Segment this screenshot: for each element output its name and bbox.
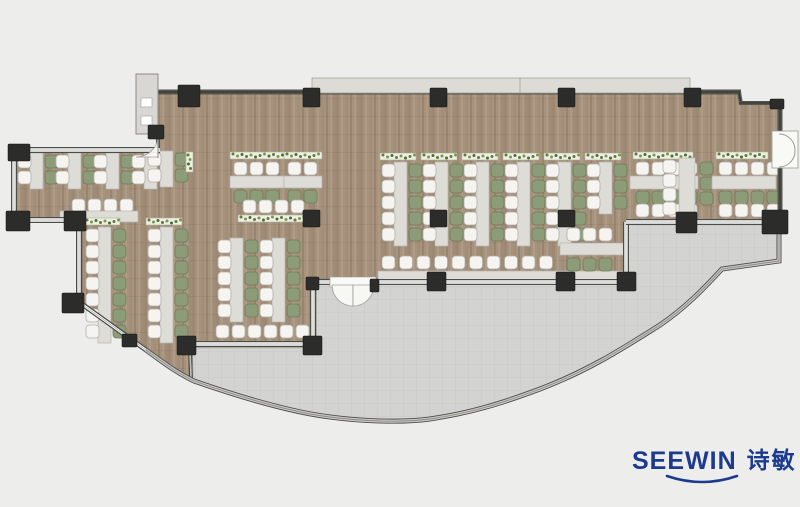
chair-white: [218, 288, 231, 301]
chair-white: [148, 261, 161, 274]
chair-green: [491, 196, 504, 209]
plant-icon: [505, 154, 508, 157]
chair-white: [567, 228, 580, 241]
chair-green: [751, 191, 764, 204]
plant-icon: [675, 153, 678, 156]
chair-white: [587, 164, 600, 177]
desk-cluster: [567, 258, 612, 271]
chair-white: [148, 169, 161, 182]
plant-icon: [648, 155, 651, 158]
chair-green: [450, 164, 463, 177]
desk: [476, 162, 489, 246]
chair-green: [532, 196, 545, 209]
plant-icon: [441, 155, 444, 158]
plant-icon: [95, 219, 98, 222]
chair-white: [148, 309, 161, 322]
chair-white: [216, 325, 229, 338]
plant-icon: [491, 155, 494, 158]
desk: [599, 162, 612, 214]
chair-white: [86, 277, 99, 290]
plant-icon: [763, 155, 766, 158]
chair-white: [132, 171, 145, 184]
chair-white: [423, 196, 436, 209]
desk: [230, 176, 284, 188]
chair-white: [505, 180, 518, 193]
chair-green: [113, 293, 126, 306]
plant-icon: [391, 154, 394, 157]
structural-column: [558, 210, 575, 227]
plant-icon: [108, 222, 111, 225]
plant-icon: [277, 155, 280, 158]
plant-icon: [268, 155, 271, 158]
plant-icon: [722, 155, 725, 158]
structural-column: [427, 272, 446, 291]
plant-icon: [618, 154, 621, 157]
plant-icon: [666, 153, 669, 156]
desk-cluster: [260, 238, 300, 322]
chair-white: [487, 256, 500, 269]
desk: [272, 238, 285, 322]
chair-white: [505, 212, 518, 225]
chair-white: [636, 204, 649, 217]
plant-icon: [285, 218, 288, 221]
chair-green: [491, 180, 504, 193]
chair-green: [245, 272, 258, 285]
desk: [160, 151, 173, 187]
plant-icon: [684, 154, 687, 157]
plant-icon: [298, 217, 301, 220]
chair-white: [435, 256, 448, 269]
chair-white: [663, 160, 676, 173]
chair-green: [113, 245, 126, 258]
chair-white: [522, 256, 535, 269]
plant-icon: [175, 220, 178, 223]
desk: [435, 162, 448, 246]
chair-white: [464, 180, 477, 193]
plant-icon: [550, 156, 553, 159]
structural-column: [556, 272, 575, 291]
structural-column: [684, 88, 701, 107]
chair-white: [546, 196, 559, 209]
desk-cluster: [380, 153, 422, 246]
chair-white: [266, 162, 279, 175]
chair-green: [113, 229, 126, 242]
plant-icon: [477, 156, 480, 159]
chair-white: [104, 199, 117, 212]
chair-green: [175, 245, 188, 258]
chair-white: [94, 155, 107, 168]
plant-icon: [263, 153, 266, 156]
desk: [517, 162, 530, 246]
plant-icon: [591, 156, 594, 159]
chair-green: [573, 180, 586, 193]
structural-column: [177, 336, 196, 355]
plant-icon: [276, 218, 279, 221]
plant-icon: [395, 156, 398, 159]
chair-white: [382, 196, 395, 209]
floorplan-image: SEEWIN 诗敏: [0, 0, 800, 507]
plant-icon: [245, 155, 248, 158]
chair-white: [260, 272, 273, 285]
chair-green: [700, 162, 713, 175]
plant-icon: [104, 220, 107, 223]
desk-cluster: [560, 243, 624, 255]
plant-icon: [161, 221, 164, 224]
chair-green: [113, 277, 126, 290]
structural-column: [148, 125, 164, 139]
plant-icon: [464, 154, 467, 157]
plant-icon: [409, 155, 412, 158]
chair-white: [243, 200, 256, 213]
plant-icon: [454, 154, 457, 157]
chair-green: [700, 177, 713, 190]
chair-white: [234, 162, 247, 175]
plant-icon: [523, 155, 526, 158]
chair-green: [491, 228, 504, 241]
chair-white: [259, 200, 272, 213]
structural-column: [8, 144, 30, 161]
plant-icon: [536, 154, 539, 157]
structural-column: [178, 85, 200, 107]
plant-icon: [254, 156, 257, 159]
chair-white: [470, 256, 483, 269]
plant-icon: [605, 155, 608, 158]
chair-white: [400, 256, 413, 269]
structural-column: [430, 210, 447, 227]
plant-icon: [382, 154, 385, 157]
plant-icon: [468, 156, 471, 159]
chair-green: [113, 261, 126, 274]
chair-green: [175, 293, 188, 306]
chair-white: [56, 155, 69, 168]
plant-icon: [427, 156, 430, 159]
chair-green: [175, 229, 188, 242]
desk: [230, 238, 243, 322]
chair-white: [218, 304, 231, 317]
chair-white: [505, 196, 518, 209]
plant-icon: [573, 155, 576, 158]
chair-white: [260, 256, 273, 269]
desk: [106, 153, 119, 189]
plant-icon: [189, 158, 192, 161]
chair-white: [291, 200, 304, 213]
chair-green: [636, 191, 649, 204]
desk-cluster: [56, 153, 96, 189]
chair-white: [86, 229, 99, 242]
plant-icon: [559, 156, 562, 159]
plant-icon: [240, 216, 243, 219]
plant-icon: [473, 154, 476, 157]
plant-icon: [272, 153, 275, 156]
plant-icon: [600, 156, 603, 159]
desk-cluster: [462, 153, 504, 246]
floorplan-svg: [0, 0, 800, 507]
chair-green: [287, 240, 300, 253]
plant-icon: [555, 154, 558, 157]
chair-white: [218, 240, 231, 253]
plant-icon: [662, 154, 665, 157]
plant-icon: [532, 155, 535, 158]
chair-green: [599, 258, 612, 271]
plant-icon: [587, 154, 590, 157]
plant-icon: [596, 154, 599, 157]
plant-icon: [117, 219, 120, 222]
chair-green: [700, 192, 713, 205]
plant-icon: [635, 153, 638, 156]
chair-white: [546, 212, 559, 225]
chair-white: [464, 212, 477, 225]
plant-icon: [308, 156, 311, 159]
chair-green: [287, 288, 300, 301]
plant-icon: [253, 218, 256, 221]
desk: [378, 271, 628, 280]
plant-icon: [527, 157, 530, 160]
chair-white: [423, 228, 436, 241]
desk: [712, 176, 776, 189]
desk-cluster: [679, 158, 695, 214]
plant-icon: [727, 153, 730, 156]
chair-white: [148, 325, 161, 338]
chair-green: [245, 240, 258, 253]
plant-icon: [299, 155, 302, 158]
plant-icon: [400, 155, 403, 158]
chair-green: [614, 196, 627, 209]
chair-green: [614, 180, 627, 193]
chair-green: [245, 288, 258, 301]
chair-green: [719, 191, 732, 204]
plant-icon: [482, 155, 485, 158]
chair-white: [751, 162, 764, 175]
plant-icon: [758, 153, 761, 156]
desk: [68, 153, 81, 189]
chair-white: [382, 164, 395, 177]
chair-white: [275, 200, 288, 213]
chair-white: [56, 171, 69, 184]
chair-white: [423, 164, 436, 177]
plant-icon: [99, 221, 102, 224]
chair-white: [423, 180, 436, 193]
plant-icon: [148, 219, 151, 222]
structural-column: [430, 88, 447, 107]
brand-wordmark: SEEWIN: [632, 449, 737, 474]
plant-icon: [639, 155, 642, 158]
plant-icon: [509, 156, 512, 159]
chair-white: [452, 256, 465, 269]
chair-white: [86, 293, 99, 306]
shaft-fixture: [141, 116, 152, 125]
chair-white: [464, 228, 477, 241]
plant-icon: [290, 155, 293, 158]
desk-cluster: [378, 271, 628, 280]
plant-icon: [259, 154, 262, 157]
plant-icon: [432, 154, 435, 157]
chair-white: [280, 325, 293, 338]
chair-white: [636, 162, 649, 175]
plant-icon: [445, 157, 448, 160]
chair-green: [567, 258, 580, 271]
plant-icon: [267, 217, 270, 220]
chair-white: [260, 288, 273, 301]
chair-white: [719, 204, 732, 217]
chair-green: [409, 228, 422, 241]
chair-green: [450, 228, 463, 241]
plant-icon: [166, 220, 169, 223]
chair-green: [532, 228, 545, 241]
plant-icon: [754, 155, 757, 158]
plant-icon: [317, 153, 320, 156]
plant-icon: [189, 167, 192, 170]
plant-icon: [232, 153, 235, 156]
chair-white: [546, 164, 559, 177]
plant-icon: [304, 154, 307, 157]
structural-column: [6, 211, 30, 231]
plant-icon: [187, 163, 190, 166]
chair-green: [450, 196, 463, 209]
window-band: [312, 78, 690, 93]
desk-cluster: [238, 215, 312, 222]
chair-white: [218, 272, 231, 285]
chair-white: [304, 162, 317, 175]
brand-swoosh-icon: [664, 474, 740, 486]
chair-white: [382, 180, 395, 193]
plant-icon: [294, 219, 297, 222]
plant-icon: [386, 156, 389, 159]
chair-white: [86, 261, 99, 274]
chair-white: [505, 164, 518, 177]
brand-chinese-name: 诗敏: [747, 449, 797, 472]
plant-icon: [413, 154, 416, 157]
plant-icon: [113, 220, 116, 223]
chair-green: [532, 212, 545, 225]
chair-white: [260, 240, 273, 253]
plant-icon: [289, 217, 292, 220]
chair-white: [464, 164, 477, 177]
chair-green: [450, 180, 463, 193]
plant-icon: [187, 154, 190, 157]
chair-green: [245, 304, 258, 317]
structural-column: [370, 279, 379, 292]
plant-icon: [90, 221, 93, 224]
plant-icon: [644, 153, 647, 156]
plant-icon: [280, 216, 283, 219]
structural-column: [770, 99, 784, 109]
plant-icon: [653, 154, 656, 157]
chair-white: [288, 162, 301, 175]
chair-green: [175, 309, 188, 322]
chair-white: [264, 325, 277, 338]
chair-white: [232, 325, 245, 338]
structural-column: [64, 211, 86, 231]
plant-icon: [404, 157, 407, 160]
chair-white: [735, 204, 748, 217]
chair-white: [148, 293, 161, 306]
plant-icon: [241, 153, 244, 156]
chair-white: [250, 162, 263, 175]
desk: [284, 176, 322, 188]
plant-icon: [236, 155, 239, 158]
chair-white: [86, 245, 99, 258]
chair-green: [175, 261, 188, 274]
plant-icon: [170, 222, 173, 225]
chair-green: [491, 164, 504, 177]
chair-white: [382, 228, 395, 241]
desk-cluster: [712, 176, 776, 189]
brand-logo: SEEWIN 诗敏: [632, 449, 797, 474]
structural-column: [303, 88, 320, 107]
plant-icon: [614, 155, 617, 158]
chair-white: [505, 256, 518, 269]
chair-green: [113, 309, 126, 322]
chair-white: [663, 188, 676, 201]
chair-white: [663, 174, 676, 187]
chair-white: [248, 325, 261, 338]
chair-green: [735, 191, 748, 204]
chair-white: [148, 245, 161, 258]
plant-icon: [736, 154, 739, 157]
chair-white: [382, 212, 395, 225]
plant-icon: [568, 157, 571, 160]
chair-green: [614, 164, 627, 177]
chair-green: [532, 180, 545, 193]
plant-icon: [577, 154, 580, 157]
chair-green: [573, 164, 586, 177]
structural-column: [306, 277, 319, 290]
chair-white: [148, 277, 161, 290]
plant-icon: [740, 156, 743, 159]
plant-icon: [731, 155, 734, 158]
structural-column: [122, 334, 137, 347]
desk-cluster: [716, 152, 768, 159]
chair-white: [583, 228, 596, 241]
structural-column: [558, 88, 575, 107]
desk-cluster: [186, 152, 193, 172]
chair-white: [417, 256, 430, 269]
desk: [30, 153, 43, 189]
plant-icon: [609, 157, 612, 160]
chair-green: [245, 256, 258, 269]
plant-icon: [244, 218, 247, 221]
plant-icon: [423, 154, 426, 157]
plant-icon: [313, 154, 316, 157]
plant-icon: [281, 154, 284, 157]
plant-icon: [250, 154, 253, 157]
chair-green: [573, 196, 586, 209]
desk-cluster: [94, 153, 134, 189]
chair-green: [491, 212, 504, 225]
chair-white: [464, 196, 477, 209]
chair-white: [505, 228, 518, 241]
chair-green: [304, 190, 317, 203]
chair-white: [735, 162, 748, 175]
chair-white: [88, 199, 101, 212]
chair-white: [382, 256, 395, 269]
chair-white: [663, 202, 676, 215]
plant-icon: [436, 156, 439, 159]
chair-green: [175, 277, 188, 290]
chair-green: [409, 180, 422, 193]
plant-icon: [657, 156, 660, 159]
structural-column: [62, 293, 84, 313]
desk-cluster: [218, 238, 258, 322]
chair-green: [287, 272, 300, 285]
desk-cluster: [700, 162, 713, 205]
chair-green: [409, 212, 422, 225]
chair-green: [287, 304, 300, 317]
desk: [560, 243, 624, 255]
structural-column: [303, 336, 322, 355]
chair-green: [450, 212, 463, 225]
chair-white: [148, 229, 161, 242]
